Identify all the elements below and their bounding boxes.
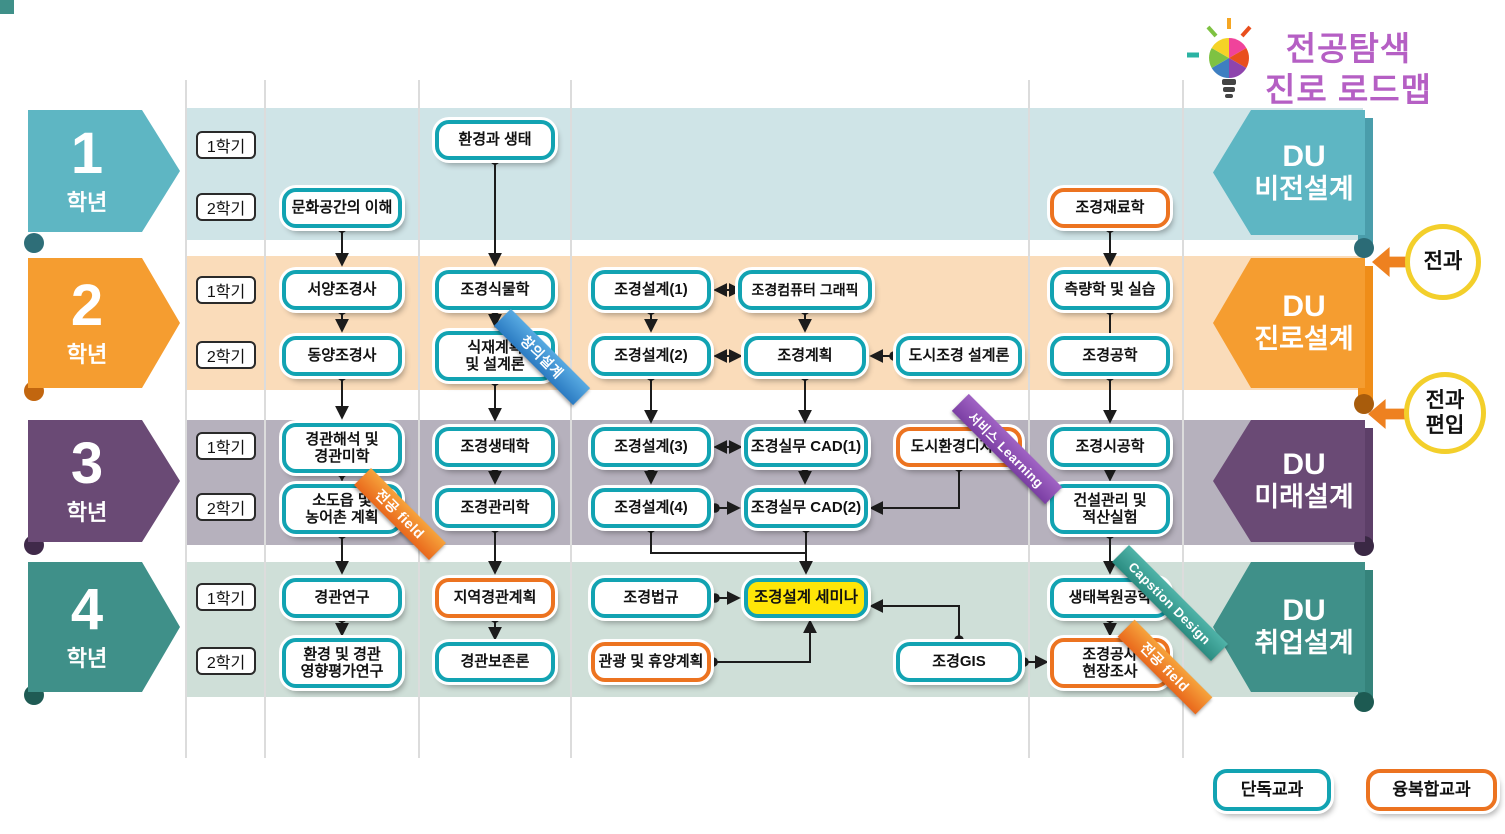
course-box: 지역경관계획 <box>435 578 555 618</box>
year-number: 2 <box>71 277 103 335</box>
course-box: 조경설계(3) <box>591 427 711 467</box>
course-box: 조경컴퓨터 그래픽 <box>738 270 872 310</box>
semester-chip: 1학기 <box>196 131 256 159</box>
course-box: 문화공간의 이해 <box>282 188 402 228</box>
course-box-seminar: 조경설계 세미나 <box>744 578 868 618</box>
semester-chip: 2학기 <box>196 193 256 221</box>
du-label: DU <box>1282 140 1325 173</box>
course-box: 동양조경사 <box>282 336 402 376</box>
semester-chip: 1학기 <box>196 432 256 460</box>
course-box: 조경식물학 <box>435 270 555 310</box>
course-box: 조경법규 <box>591 578 711 618</box>
year-number: 3 <box>71 435 103 493</box>
transfer-admission-callout: 전과 편입 <box>1404 372 1486 454</box>
course-box: 조경실무 CAD(1) <box>744 427 868 467</box>
course-box: 조경생태학 <box>435 427 555 467</box>
title-line2: 진로 로드맵 <box>1265 69 1432 110</box>
du-label2: 비전설계 <box>1254 173 1353 205</box>
semester-chip: 2학기 <box>196 647 256 675</box>
course-box: 경관연구 <box>282 578 402 618</box>
du-label: DU <box>1282 448 1325 481</box>
semester-chip: 1학기 <box>196 276 256 304</box>
course-box: 환경과 생태 <box>435 120 555 160</box>
legend-single-course: 단독교과 <box>1213 769 1331 811</box>
course-box: 조경시공학 <box>1050 427 1170 467</box>
semester-chip: 2학기 <box>196 493 256 521</box>
year-suffix: 학년 <box>67 641 107 673</box>
course-box: 경관해석 및 경관미학 <box>282 423 402 473</box>
lightbulb-icon <box>1185 14 1265 111</box>
semester-chip: 1학기 <box>196 583 256 611</box>
year-number: 1 <box>71 125 103 183</box>
course-box: 조경계획 <box>744 336 866 376</box>
semester-chip: 2학기 <box>196 341 256 369</box>
course-box: 조경재료학 <box>1050 188 1170 228</box>
course-box: 조경실무 CAD(2) <box>744 488 868 528</box>
du-label: DU <box>1282 290 1325 323</box>
course-box: 조경공학 <box>1050 336 1170 376</box>
year-suffix: 학년 <box>67 337 107 369</box>
course-box: 서양조경사 <box>282 270 402 310</box>
course-box: 조경설계(1) <box>591 270 711 310</box>
course-box: 조경설계(4) <box>591 488 711 528</box>
course-box: 도시조경 설계론 <box>896 336 1022 376</box>
course-box: 조경GIS <box>896 642 1022 682</box>
du-label2: 진로설계 <box>1254 323 1353 355</box>
year-number: 4 <box>71 581 103 639</box>
course-box: 관광 및 휴양계획 <box>591 642 711 682</box>
course-box: 건설관리 및 적산실험 <box>1050 484 1170 534</box>
course-box: 측량학 및 실습 <box>1050 270 1170 310</box>
course-box: 조경설계(2) <box>591 336 711 376</box>
page-title: 전공탐색 진로 로드맵 <box>1185 14 1432 111</box>
title-text: 전공탐색 진로 로드맵 <box>1265 28 1432 111</box>
title-line1: 전공탐색 <box>1265 28 1432 69</box>
legend-fusion-course: 융복합교과 <box>1366 769 1497 811</box>
du-label: DU <box>1282 594 1325 627</box>
course-box: 조경관리학 <box>435 488 555 528</box>
year-suffix: 학년 <box>67 495 107 527</box>
course-box: 경관보존론 <box>435 642 555 682</box>
course-box: 환경 및 경관 영향평가연구 <box>282 638 402 688</box>
transfer-callout: 전과 <box>1405 224 1481 300</box>
year-suffix: 학년 <box>67 185 107 217</box>
roadmap-canvas: 전공탐색 진로 로드맵 1 학년 2 학년 3 학년 4 학년 DU 비전설계 … <box>0 0 1505 834</box>
du-label2: 취업설계 <box>1254 627 1353 659</box>
du-label2: 미래설계 <box>1254 481 1353 513</box>
